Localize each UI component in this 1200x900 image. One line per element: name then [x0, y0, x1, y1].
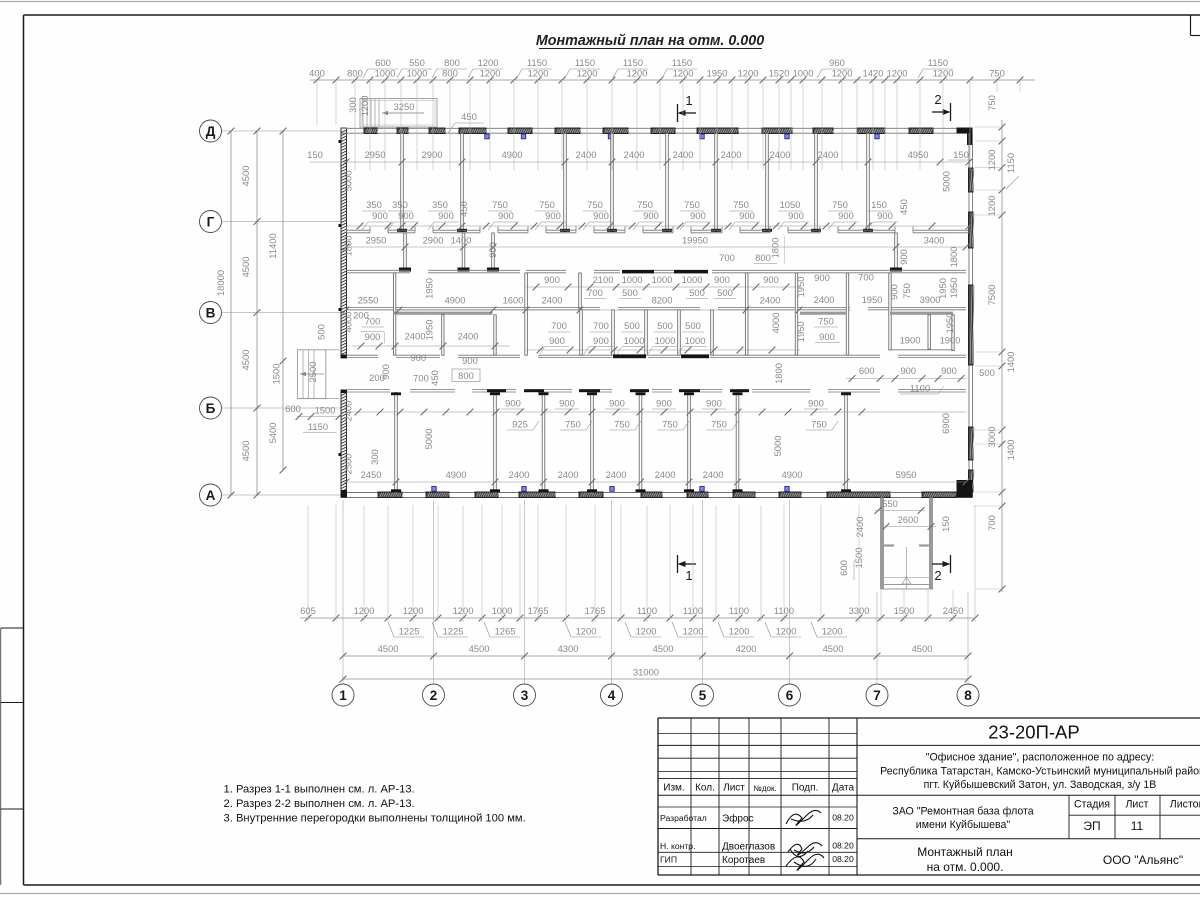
svg-text:600: 600 — [838, 560, 849, 576]
svg-text:750: 750 — [818, 316, 834, 327]
svg-text:1000: 1000 — [682, 274, 703, 285]
svg-text:"Офисное здание", расположенно: "Офисное здание", расположенное по адрес… — [926, 752, 1154, 764]
svg-text:1000: 1000 — [624, 335, 645, 346]
svg-text:4500: 4500 — [469, 643, 490, 654]
svg-text:5000: 5000 — [772, 436, 783, 457]
svg-text:700: 700 — [858, 272, 874, 283]
svg-text:2400: 2400 — [405, 331, 426, 342]
svg-text:900: 900 — [814, 272, 830, 283]
svg-text:2: 2 — [934, 568, 941, 583]
svg-text:1800: 1800 — [948, 247, 959, 268]
svg-text:1000: 1000 — [793, 68, 814, 79]
svg-text:900: 900 — [941, 365, 957, 376]
svg-text:3900: 3900 — [920, 294, 941, 305]
svg-text:1100: 1100 — [729, 605, 749, 616]
svg-text:Г: Г — [207, 214, 215, 229]
svg-text:550: 550 — [882, 498, 898, 509]
svg-text:3: 3 — [521, 688, 529, 703]
svg-text:500: 500 — [316, 324, 327, 340]
svg-text:4500: 4500 — [823, 643, 844, 654]
svg-text:1000: 1000 — [652, 274, 673, 285]
svg-text:4500: 4500 — [240, 441, 251, 462]
svg-text:1265: 1265 — [495, 626, 516, 637]
svg-text:900: 900 — [462, 355, 478, 366]
svg-text:Б: Б — [206, 401, 216, 416]
svg-text:2500: 2500 — [343, 454, 354, 475]
svg-text:Листов: Листов — [1170, 799, 1200, 811]
svg-text:900: 900 — [706, 398, 722, 409]
svg-text:750: 750 — [614, 419, 630, 430]
svg-text:19950: 19950 — [682, 235, 708, 246]
svg-text:900: 900 — [643, 210, 659, 221]
svg-text:900: 900 — [410, 352, 426, 363]
svg-text:450: 450 — [461, 111, 477, 122]
svg-text:2400: 2400 — [721, 149, 742, 160]
svg-text:900: 900 — [889, 284, 900, 300]
svg-text:на отм. 0.000.: на отм. 0.000. — [927, 860, 1004, 874]
svg-text:4: 4 — [608, 688, 616, 703]
svg-text:1400: 1400 — [1005, 352, 1016, 373]
svg-text:2900: 2900 — [422, 149, 443, 160]
svg-text:08.20: 08.20 — [832, 813, 854, 823]
svg-text:Д: Д — [206, 124, 216, 139]
svg-text:900: 900 — [788, 210, 804, 221]
svg-text:2500: 2500 — [307, 362, 318, 383]
svg-text:1000: 1000 — [375, 68, 396, 79]
svg-text:№док.: №док. — [753, 784, 776, 793]
svg-text:1500: 1500 — [853, 548, 864, 569]
svg-text:700: 700 — [413, 373, 429, 384]
svg-text:500: 500 — [624, 320, 640, 331]
svg-text:1200: 1200 — [673, 68, 694, 79]
svg-text:4000: 4000 — [770, 313, 781, 334]
svg-text:500: 500 — [622, 287, 638, 298]
svg-text:4950: 4950 — [908, 149, 929, 160]
svg-text:1950: 1950 — [795, 321, 806, 342]
svg-text:750: 750 — [539, 199, 555, 210]
svg-text:900: 900 — [690, 210, 706, 221]
svg-text:ЗАО "Ремонтная база флота: ЗАО "Ремонтная база флота — [892, 806, 1033, 818]
svg-text:2: 2 — [934, 92, 941, 107]
svg-text:750: 750 — [711, 419, 727, 430]
svg-text:750: 750 — [989, 68, 1005, 79]
svg-text:900: 900 — [900, 365, 916, 376]
svg-text:1225: 1225 — [443, 626, 464, 637]
svg-text:900: 900 — [398, 210, 414, 221]
svg-text:5000: 5000 — [423, 429, 434, 450]
svg-text:750: 750 — [811, 419, 827, 430]
svg-text:1200: 1200 — [359, 96, 370, 117]
svg-text:4500: 4500 — [240, 166, 251, 187]
svg-text:Н. контр.: Н. контр. — [660, 841, 695, 851]
svg-text:900: 900 — [505, 398, 521, 409]
svg-text:2450: 2450 — [361, 469, 382, 480]
svg-text:2400: 2400 — [509, 469, 530, 480]
svg-text:23-20П-АР: 23-20П-АР — [988, 722, 1079, 743]
svg-text:750: 750 — [662, 419, 678, 430]
svg-text:1: 1 — [685, 568, 692, 583]
svg-text:2950: 2950 — [366, 235, 387, 246]
svg-text:8200: 8200 — [652, 295, 673, 306]
svg-text:4000: 4000 — [343, 312, 354, 333]
svg-text:1200: 1200 — [738, 68, 759, 79]
svg-text:500: 500 — [685, 320, 701, 331]
svg-text:150: 150 — [953, 149, 969, 160]
svg-text:2450: 2450 — [943, 605, 964, 616]
svg-text:750: 750 — [492, 199, 508, 210]
svg-text:1200: 1200 — [576, 626, 597, 637]
svg-text:3250: 3250 — [394, 101, 415, 112]
svg-text:900: 900 — [808, 398, 824, 409]
svg-text:1765: 1765 — [585, 605, 606, 616]
svg-text:1200: 1200 — [933, 68, 954, 79]
svg-text:Эфрос: Эфрос — [722, 813, 754, 825]
svg-text:900: 900 — [714, 274, 730, 285]
svg-text:Коротаев: Коротаев — [722, 855, 765, 866]
svg-text:2400: 2400 — [854, 517, 865, 538]
svg-text:500: 500 — [689, 287, 705, 298]
svg-text:Монтажный план: Монтажный план — [917, 845, 1013, 859]
svg-text:2400: 2400 — [542, 295, 563, 306]
svg-text:1200: 1200 — [354, 605, 375, 616]
svg-text:300: 300 — [369, 449, 380, 465]
svg-text:900: 900 — [739, 210, 755, 221]
svg-text:1950: 1950 — [795, 277, 806, 298]
svg-text:31000: 31000 — [633, 667, 659, 678]
svg-text:150: 150 — [307, 149, 323, 160]
svg-text:1400: 1400 — [1005, 440, 1016, 461]
svg-text:2400: 2400 — [343, 401, 354, 422]
svg-text:2600: 2600 — [898, 514, 919, 525]
svg-text:350: 350 — [432, 199, 448, 210]
svg-text:500: 500 — [979, 367, 995, 378]
svg-text:3. Внутренние перегородки выпо: 3. Внутренние перегородки выполнены толщ… — [224, 813, 526, 825]
svg-text:1050: 1050 — [780, 199, 801, 210]
svg-text:1000: 1000 — [655, 335, 676, 346]
svg-text:1200: 1200 — [887, 68, 908, 79]
svg-text:900: 900 — [372, 210, 388, 221]
svg-text:900: 900 — [380, 364, 391, 380]
svg-text:150: 150 — [871, 199, 887, 210]
svg-text:1950: 1950 — [862, 294, 883, 305]
svg-text:6900: 6900 — [940, 413, 951, 434]
svg-text:350: 350 — [366, 199, 382, 210]
svg-text:900: 900 — [898, 249, 909, 265]
svg-text:2900: 2900 — [423, 235, 444, 246]
svg-text:4900: 4900 — [445, 295, 466, 306]
svg-text:2400: 2400 — [655, 469, 676, 480]
svg-text:8: 8 — [964, 688, 972, 703]
svg-text:600: 600 — [859, 365, 875, 376]
svg-text:3000: 3000 — [986, 427, 997, 448]
svg-text:900: 900 — [763, 274, 779, 285]
svg-text:А: А — [206, 488, 216, 503]
svg-text:800: 800 — [442, 68, 458, 79]
svg-text:1225: 1225 — [399, 626, 420, 637]
svg-text:1150: 1150 — [928, 57, 948, 68]
svg-text:Монтажный план на отм. 0.000: Монтажный план на отм. 0.000 — [536, 33, 764, 49]
svg-text:1000: 1000 — [407, 68, 428, 79]
svg-text:900: 900 — [549, 335, 565, 346]
svg-text:08.20: 08.20 — [832, 854, 854, 864]
svg-text:1200: 1200 — [478, 57, 499, 68]
svg-text:900: 900 — [365, 331, 381, 342]
svg-text:1200: 1200 — [577, 68, 598, 79]
svg-text:900: 900 — [877, 210, 893, 221]
svg-text:1200: 1200 — [986, 150, 997, 171]
svg-text:700: 700 — [593, 320, 609, 331]
svg-text:2400: 2400 — [703, 469, 724, 480]
svg-text:4500: 4500 — [240, 350, 251, 371]
svg-text:08.20: 08.20 — [832, 841, 854, 851]
svg-text:4900: 4900 — [502, 149, 523, 160]
svg-text:900: 900 — [838, 210, 854, 221]
svg-text:500: 500 — [657, 320, 673, 331]
svg-text:1200: 1200 — [683, 626, 704, 637]
svg-text:1000: 1000 — [622, 274, 643, 285]
svg-text:1. Разрез 1-1 выполнен см. л.: 1. Разрез 1-1 выполнен см. л. АР-13. — [224, 784, 415, 796]
svg-text:1400: 1400 — [451, 235, 472, 246]
svg-text:пгт. Куйбышевский Затон, ул. З: пгт. Куйбышевский Затон, ул. Заводская, … — [924, 779, 1157, 791]
svg-text:1500: 1500 — [894, 605, 915, 616]
svg-text:1200: 1200 — [403, 605, 424, 616]
svg-text:2400: 2400 — [624, 149, 645, 160]
svg-text:1900: 1900 — [900, 335, 921, 346]
svg-text:900: 900 — [438, 210, 454, 221]
svg-text:800: 800 — [444, 57, 460, 68]
svg-text:750: 750 — [986, 95, 997, 111]
svg-text:600: 600 — [375, 57, 391, 68]
svg-text:11400: 11400 — [267, 233, 278, 258]
svg-text:1200: 1200 — [986, 196, 997, 217]
svg-text:6: 6 — [786, 688, 794, 703]
svg-text:Республика Татарстан, Камско-У: Республика Татарстан, Камско-Устьинский … — [880, 766, 1200, 778]
svg-text:1100: 1100 — [910, 383, 930, 394]
svg-text:450: 450 — [429, 370, 440, 386]
svg-text:900: 900 — [544, 274, 560, 285]
svg-text:4300: 4300 — [558, 643, 579, 654]
svg-text:800: 800 — [347, 68, 363, 79]
svg-text:2400: 2400 — [576, 149, 597, 160]
svg-text:1950: 1950 — [424, 320, 435, 341]
svg-text:750: 750 — [901, 283, 912, 299]
svg-text:1200: 1200 — [636, 626, 657, 637]
svg-text:1420: 1420 — [863, 68, 884, 79]
svg-text:700: 700 — [551, 320, 567, 331]
svg-text:4500: 4500 — [653, 643, 674, 654]
svg-text:4200: 4200 — [736, 643, 757, 654]
svg-text:7500: 7500 — [986, 285, 997, 306]
svg-text:900: 900 — [593, 210, 609, 221]
svg-text:2400: 2400 — [558, 469, 579, 480]
svg-text:1150: 1150 — [527, 57, 547, 68]
svg-text:2. Разрез 2-2 выполнен см. л.: 2. Разрез 2-2 выполнен см. л. АР-13. — [224, 798, 415, 810]
svg-text:960: 960 — [829, 57, 845, 68]
svg-text:1800: 1800 — [343, 236, 354, 257]
svg-text:5400: 5400 — [267, 423, 278, 444]
svg-text:1600: 1600 — [503, 295, 524, 306]
svg-text:750: 750 — [637, 199, 653, 210]
svg-text:925: 925 — [512, 419, 528, 430]
svg-text:5: 5 — [699, 688, 707, 703]
svg-text:5000: 5000 — [343, 171, 354, 192]
svg-text:1200: 1200 — [528, 68, 549, 79]
svg-text:750: 750 — [684, 199, 700, 210]
svg-text:18000: 18000 — [215, 270, 226, 296]
svg-text:750: 750 — [565, 419, 581, 430]
svg-text:1200: 1200 — [627, 68, 648, 79]
svg-text:ООО "Альянс": ООО "Альянс" — [1103, 853, 1183, 867]
svg-text:1800: 1800 — [770, 238, 781, 259]
svg-text:2400: 2400 — [673, 149, 694, 160]
svg-text:400: 400 — [309, 68, 325, 79]
svg-text:700: 700 — [587, 287, 603, 298]
svg-text:900: 900 — [819, 331, 835, 342]
svg-text:1100: 1100 — [637, 605, 657, 616]
svg-text:5000: 5000 — [941, 171, 952, 192]
svg-text:Лист: Лист — [723, 783, 745, 794]
svg-text:1800: 1800 — [773, 363, 784, 384]
svg-text:4500: 4500 — [240, 257, 251, 278]
svg-text:1150: 1150 — [308, 421, 328, 432]
svg-text:900: 900 — [656, 398, 672, 409]
svg-text:1150: 1150 — [575, 57, 595, 68]
svg-text:500: 500 — [717, 287, 733, 298]
svg-text:2400: 2400 — [760, 295, 781, 306]
svg-text:1200: 1200 — [480, 68, 501, 79]
svg-text:имени Куйбышева": имени Куйбышева" — [916, 819, 1011, 831]
svg-text:900: 900 — [593, 335, 609, 346]
svg-text:1100: 1100 — [683, 605, 703, 616]
svg-text:1000: 1000 — [492, 605, 513, 616]
svg-text:1520: 1520 — [769, 68, 790, 79]
svg-text:2550: 2550 — [358, 295, 379, 306]
svg-text:750: 750 — [587, 199, 603, 210]
svg-text:1950: 1950 — [424, 278, 435, 299]
svg-text:4500: 4500 — [912, 643, 933, 654]
svg-text:4500: 4500 — [378, 643, 399, 654]
svg-text:1150: 1150 — [623, 57, 643, 68]
svg-text:1900: 1900 — [940, 335, 961, 346]
svg-text:300: 300 — [347, 97, 358, 113]
svg-text:ЭП: ЭП — [1083, 819, 1100, 833]
svg-text:150: 150 — [940, 516, 951, 532]
svg-text:1500: 1500 — [271, 364, 282, 385]
svg-text:450: 450 — [458, 201, 469, 217]
svg-text:1950: 1950 — [948, 278, 959, 299]
svg-text:ГИП: ГИП — [660, 855, 677, 865]
svg-text:1000: 1000 — [685, 335, 706, 346]
svg-text:Лист: Лист — [1125, 799, 1148, 811]
svg-text:2400: 2400 — [818, 149, 839, 160]
svg-text:2100: 2100 — [593, 274, 614, 285]
svg-text:1200: 1200 — [822, 626, 843, 637]
svg-text:1200: 1200 — [832, 68, 853, 79]
svg-text:7: 7 — [873, 688, 881, 703]
svg-text:1200: 1200 — [453, 605, 474, 616]
svg-text:800: 800 — [755, 252, 771, 263]
svg-text:5950: 5950 — [896, 469, 917, 480]
svg-text:Кол.: Кол. — [695, 783, 715, 794]
svg-text:700: 700 — [986, 515, 997, 531]
svg-text:4900: 4900 — [782, 469, 803, 480]
svg-text:1765: 1765 — [528, 605, 549, 616]
svg-text:800: 800 — [458, 370, 474, 381]
svg-text:1200: 1200 — [729, 626, 750, 637]
svg-text:4900: 4900 — [446, 469, 467, 480]
svg-text:750: 750 — [733, 199, 749, 210]
svg-text:1500: 1500 — [315, 405, 336, 416]
svg-text:11: 11 — [1131, 819, 1144, 833]
svg-text:1150: 1150 — [672, 57, 692, 68]
svg-text:1: 1 — [339, 688, 347, 703]
svg-text:900: 900 — [487, 242, 498, 258]
svg-text:Разработал: Разработал — [660, 813, 707, 823]
svg-text:1: 1 — [685, 93, 692, 108]
svg-text:350: 350 — [392, 199, 408, 210]
svg-text:550: 550 — [409, 57, 425, 68]
svg-text:605: 605 — [300, 605, 316, 616]
svg-text:900: 900 — [609, 398, 625, 409]
svg-text:2400: 2400 — [814, 294, 835, 305]
svg-text:750: 750 — [832, 199, 848, 210]
svg-text:1950: 1950 — [707, 68, 728, 79]
svg-text:В: В — [206, 305, 216, 320]
svg-text:900: 900 — [559, 398, 575, 409]
svg-text:2400: 2400 — [606, 469, 627, 480]
svg-text:1100: 1100 — [774, 605, 794, 616]
svg-text:700: 700 — [365, 316, 381, 327]
svg-text:3300: 3300 — [849, 605, 870, 616]
svg-text:3400: 3400 — [924, 235, 945, 246]
svg-text:Стадия: Стадия — [1074, 799, 1110, 811]
svg-text:Изм.: Изм. — [663, 783, 684, 794]
svg-text:900: 900 — [545, 210, 561, 221]
svg-text:Дата: Дата — [832, 783, 855, 794]
svg-text:2400: 2400 — [770, 149, 791, 160]
svg-text:Подп.: Подп. — [792, 783, 819, 794]
svg-text:1950: 1950 — [944, 313, 955, 334]
svg-text:1150: 1150 — [1005, 153, 1016, 173]
svg-text:2400: 2400 — [458, 331, 479, 342]
svg-text:2950: 2950 — [365, 149, 386, 160]
svg-text:Двоеглазов: Двоеглазов — [722, 842, 775, 853]
svg-text:900: 900 — [498, 210, 514, 221]
svg-text:2: 2 — [430, 688, 438, 703]
svg-text:600: 600 — [285, 403, 301, 414]
svg-text:450: 450 — [898, 199, 909, 215]
svg-text:700: 700 — [719, 252, 735, 263]
svg-text:1200: 1200 — [776, 626, 797, 637]
